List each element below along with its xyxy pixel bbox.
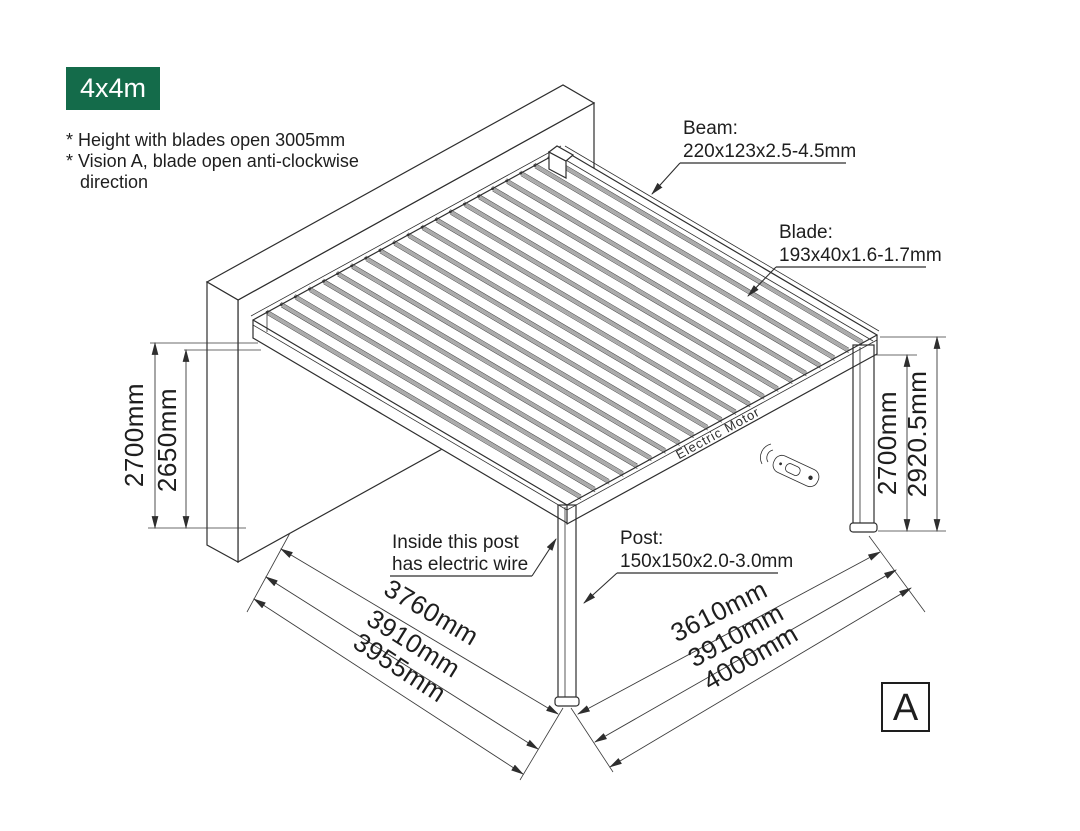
remote-control-icon — [760, 444, 821, 489]
wall-left-face — [207, 282, 238, 562]
wire-note-line2: has electric wire — [392, 554, 528, 575]
note-line-2: * Vision A, blade open anti-clockwise — [66, 151, 359, 171]
view-label: A — [893, 687, 919, 729]
size-badge: 4x4m — [66, 67, 160, 110]
size-badge-label: 4x4m — [80, 73, 146, 103]
dim-height-left-inner: 2650mm — [152, 388, 182, 492]
wire-note-line1: Inside this post — [392, 532, 519, 553]
front-post — [555, 505, 579, 706]
view-label-box: A — [882, 683, 929, 731]
front-post-foot — [555, 697, 579, 706]
callout-electric-wire: Inside this post has electric wire — [390, 532, 556, 576]
dim-height-left-outer: 2700mm — [119, 383, 149, 487]
note-line-1: * Height with blades open 3005mm — [66, 130, 345, 150]
signal-waves-icon — [760, 444, 773, 464]
dim-height-right-inner: 2700mm — [872, 391, 902, 495]
blade-size: 193x40x1.6-1.7mm — [779, 245, 942, 266]
dimension-right: 2700mm 2920.5mm — [872, 337, 946, 531]
note-line-3: direction — [80, 172, 148, 192]
beam-size: 220x123x2.5-4.5mm — [683, 141, 856, 162]
dim-height-right-outer: 2920.5mm — [902, 371, 932, 498]
beam-label: Beam: — [683, 118, 738, 139]
pergola-spec-diagram: 2700mm 2650mm 2700mm 2920.5mm 3760mm 391… — [0, 0, 1080, 831]
post-size: 150x150x2.0-3.0mm — [620, 551, 793, 572]
blade-label: Blade: — [779, 222, 833, 243]
right-post-foot — [850, 523, 877, 532]
notes: * Height with blades open 3005mm * Visio… — [66, 130, 359, 192]
post-label: Post: — [620, 528, 663, 549]
callout-beam: Beam: 220x123x2.5-4.5mm — [652, 118, 856, 194]
diagram-canvas: 2700mm 2650mm 2700mm 2920.5mm 3760mm 391… — [0, 0, 1080, 831]
